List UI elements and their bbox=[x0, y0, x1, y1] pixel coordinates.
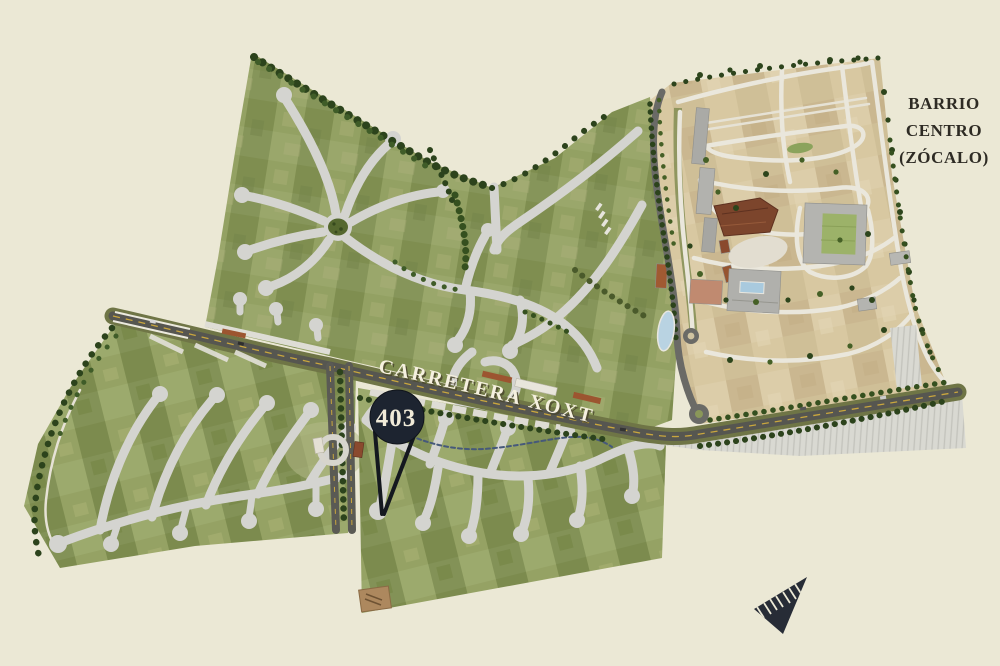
district-label-line3: (ZÓCALO) bbox=[868, 144, 1000, 171]
map-canvas: CARRETERA XOXTLA CARRETERA XOXTLA 403 bbox=[0, 0, 1000, 666]
salmon-building bbox=[689, 279, 722, 305]
gatehouse-building bbox=[655, 264, 667, 289]
marker-lot-number: 403 bbox=[376, 405, 417, 432]
junction-roundabout bbox=[689, 404, 709, 424]
roundabout bbox=[324, 213, 352, 241]
district-label-line2: CENTRO bbox=[868, 117, 1000, 144]
pool bbox=[740, 281, 765, 293]
lot-map: CARRETERA XOXTLA CARRETERA XOXTLA 403 BA… bbox=[0, 0, 1000, 666]
district-label: BARRIO CENTRO (ZÓCALO) bbox=[868, 90, 1000, 171]
museum-building bbox=[727, 269, 781, 314]
district-label-line1: BARRIO bbox=[868, 90, 1000, 117]
courtyard-field bbox=[821, 213, 856, 254]
access-roundabout bbox=[683, 328, 699, 344]
courtyard-building bbox=[803, 203, 867, 265]
sign-patch bbox=[359, 586, 392, 612]
